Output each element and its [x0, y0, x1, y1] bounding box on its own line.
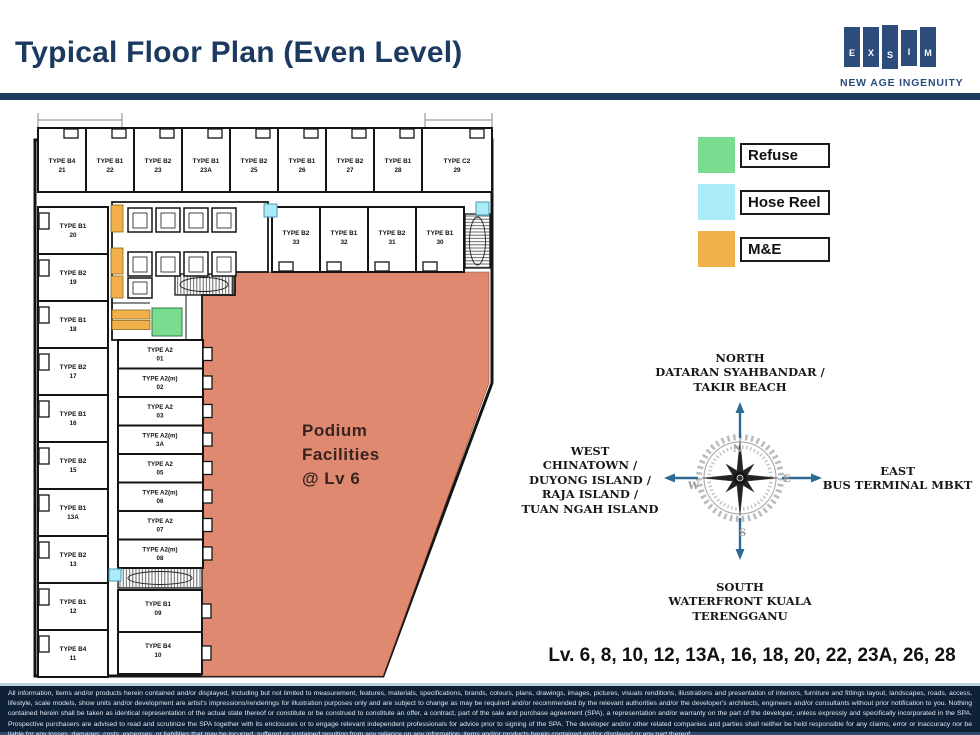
logo-letter: S	[887, 50, 893, 69]
logo-bar: S	[882, 25, 898, 69]
north-label: NORTH DATARAN SYAHBANDAR / TAKIR BEACH	[615, 351, 865, 394]
unit-cell: TYPE B217	[38, 348, 108, 395]
unit-cell: TYPE B126	[278, 128, 326, 192]
me-room	[111, 205, 123, 232]
unit-type-label: TYPE B1	[60, 599, 87, 606]
unit-type-label: TYPE B4	[145, 643, 171, 650]
unit-number-label: 18	[69, 326, 77, 333]
unit-type-label: TYPE B2	[60, 458, 87, 465]
unit-cell: TYPE B213	[38, 536, 108, 583]
unit-cell: TYPE B410	[118, 632, 211, 674]
unit-number-label: 16	[69, 420, 77, 427]
unit-number-label: 01	[157, 356, 164, 363]
unit-cell: TYPE B130	[416, 207, 464, 272]
legend-row-hose-reel: Hose Reel	[698, 184, 830, 220]
hose-reel-swatch	[698, 184, 735, 220]
unit-cell: TYPE A201	[118, 340, 212, 369]
unit-type-label: TYPE A2	[147, 518, 173, 525]
unit-type-label: TYPE A2	[147, 461, 173, 468]
unit-number-label: 28	[394, 167, 402, 174]
hose-reel	[476, 202, 489, 215]
unit-cell: TYPE B215	[38, 442, 108, 489]
unit-number-label: 05	[157, 470, 164, 477]
unit-number-label: 11	[70, 655, 77, 662]
unit-type-label: TYPE A2(m)	[142, 376, 177, 383]
me-room	[112, 310, 150, 319]
me-room	[111, 248, 123, 274]
legend: Refuse Hose Reel M&E	[698, 137, 830, 278]
unit-cell: TYPE A2(m)3A	[118, 426, 212, 455]
staircase	[465, 214, 490, 268]
staircase	[175, 274, 233, 295]
unit-number-label: 07	[157, 527, 164, 534]
east-label: EAST BUS TERMINAL MBKT	[815, 464, 980, 493]
unit-type-label: TYPE B2	[379, 230, 406, 237]
refuse-swatch	[698, 137, 735, 173]
unit-number-label: 23	[154, 167, 162, 174]
unit-type-label: TYPE B1	[385, 158, 412, 165]
unit-cell: TYPE B118	[38, 301, 108, 348]
unit-cell: TYPE B128	[374, 128, 422, 192]
unit-number-label: 21	[58, 167, 66, 174]
unit-type-label: TYPE B2	[283, 230, 310, 237]
unit-cell: TYPE B132	[320, 207, 368, 272]
unit-number-label: 15	[69, 467, 77, 474]
exsim-logo: E X S I M NEW AGE INGENUITY	[840, 24, 940, 89]
unit-type-label: TYPE A2	[147, 404, 173, 411]
unit-number-label: 08	[157, 555, 164, 562]
unit-type-label: TYPE B1	[60, 505, 87, 512]
unit-cell: TYPE A203	[118, 397, 212, 426]
unit-number-label: 26	[298, 167, 306, 174]
unit-number-label: 12	[69, 608, 77, 615]
unit-cell: TYPE B109	[118, 590, 211, 632]
unit-cell: TYPE B120	[38, 207, 108, 254]
unit-type-label: TYPE A2(m)	[142, 490, 177, 497]
unit-type-label: TYPE A2	[147, 347, 173, 354]
svg-text:E: E	[783, 474, 791, 485]
legend-row-refuse: Refuse	[698, 137, 830, 173]
unit-type-label: TYPE A2(m)	[142, 433, 177, 440]
unit-cell: TYPE B225	[230, 128, 278, 192]
logo-bar: E	[844, 27, 860, 67]
svg-text:N: N	[733, 444, 742, 455]
unit-type-label: TYPE B1	[427, 230, 454, 237]
staircase	[118, 568, 202, 588]
refuse-room	[152, 308, 182, 336]
unit-cell: TYPE A205	[118, 454, 212, 483]
unit-number-label: 27	[346, 167, 354, 174]
unit-cell: TYPE B112	[38, 583, 108, 630]
unit-number-label: 13A	[67, 514, 79, 521]
unit-cell: TYPE C229	[422, 128, 492, 192]
unit-number-label: 17	[69, 373, 77, 380]
unit-number-label: 10	[155, 652, 162, 659]
svg-text:Facilities: Facilities	[302, 445, 380, 464]
disclaimer-text: All information, items and/or products h…	[0, 686, 980, 735]
logo-bar: I	[901, 30, 917, 66]
unit-number-label: 13	[69, 561, 77, 568]
unit-cell: TYPE B113A	[38, 489, 108, 536]
svg-text:W: W	[687, 481, 700, 492]
me-room	[111, 276, 123, 298]
unit-cell: TYPE A2(m)08	[118, 540, 212, 569]
unit-cell: TYPE B411	[38, 630, 108, 677]
legend-label: M&E	[740, 237, 830, 262]
dimension-ticks	[38, 113, 492, 127]
unit-number-label: 19	[69, 279, 77, 286]
unit-type-label: TYPE B2	[60, 270, 87, 277]
logo-letter: E	[849, 48, 855, 67]
south-label: SOUTH WATERFRONT KUALA TERENGGANU	[645, 580, 835, 623]
logo-letter: I	[908, 47, 911, 66]
unit-cell: TYPE B233	[272, 207, 320, 272]
logo-bars: E X S I M	[840, 24, 940, 72]
unit-number-label: 32	[340, 239, 348, 246]
logo-tagline: NEW AGE INGENUITY	[840, 77, 940, 89]
lift-shaft	[128, 278, 152, 298]
unit-cell: TYPE A2(m)06	[118, 483, 212, 512]
unit-type-label: TYPE C2	[444, 158, 471, 165]
legend-row-me: M&E	[698, 231, 830, 267]
unit-number-label: 03	[157, 413, 164, 420]
me-room	[112, 321, 150, 330]
svg-text:S: S	[739, 528, 746, 539]
unit-cell: TYPE A207	[118, 511, 212, 540]
unit-cell: TYPE A2(m)02	[118, 369, 212, 398]
page-title: Typical Floor Plan (Even Level)	[15, 36, 462, 70]
unit-type-label: TYPE A2(m)	[142, 547, 177, 554]
header-divider	[0, 93, 980, 100]
unit-type-label: TYPE B2	[145, 158, 172, 165]
unit-number-label: 29	[453, 167, 461, 174]
unit-cell: TYPE B116	[38, 395, 108, 442]
unit-type-label: TYPE B2	[337, 158, 364, 165]
unit-number-label: 09	[155, 610, 162, 617]
unit-type-label: TYPE B1	[60, 317, 87, 324]
unit-number-label: 25	[250, 167, 258, 174]
hose-reel	[109, 569, 121, 581]
unit-type-label: TYPE B1	[331, 230, 358, 237]
logo-letter: X	[868, 48, 874, 67]
west-label: WEST CHINATOWN / DUYONG ISLAND / RAJA IS…	[510, 444, 670, 516]
unit-cell: TYPE B223	[134, 128, 182, 192]
unit-number-label: 30	[436, 239, 444, 246]
unit-number-label: 23A	[200, 167, 212, 174]
compass-hub	[737, 475, 743, 481]
disclaimer-bar: All information, items and/or products h…	[0, 686, 980, 735]
legend-label: Hose Reel	[740, 190, 830, 215]
hose-reel	[264, 204, 277, 217]
unit-type-label: TYPE B1	[60, 223, 87, 230]
unit-number-label: 02	[157, 384, 164, 391]
unit-cell: TYPE B227	[326, 128, 374, 192]
floor-plan-slide: Typical Floor Plan (Even Level) E X S I …	[0, 0, 980, 735]
svg-text:@ Lv 6: @ Lv 6	[302, 469, 360, 488]
unit-type-label: TYPE B1	[289, 158, 316, 165]
floor-plan-drawing: TYPE B421TYPE B122TYPE B223TYPE B123ATYP…	[20, 106, 500, 684]
unit-type-label: TYPE B4	[60, 646, 87, 653]
unit-type-label: TYPE B1	[193, 158, 220, 165]
unit-type-label: TYPE B1	[97, 158, 124, 165]
unit-number-label: 31	[388, 239, 396, 246]
unit-cell: TYPE B123A	[182, 128, 230, 192]
unit-number-label: 3A	[156, 441, 164, 448]
unit-number-label: 33	[292, 239, 300, 246]
logo-bar: M	[920, 27, 936, 67]
unit-type-label: TYPE B2	[241, 158, 268, 165]
unit-type-label: TYPE B2	[60, 552, 87, 559]
unit-type-label: TYPE B2	[60, 364, 87, 371]
svg-text:Podium: Podium	[302, 421, 367, 440]
unit-cell: TYPE B421	[38, 128, 86, 192]
unit-type-label: TYPE B1	[60, 411, 87, 418]
me-swatch	[698, 231, 735, 267]
unit-number-label: 22	[106, 167, 114, 174]
unit-number-label: 20	[69, 232, 77, 239]
unit-cell: TYPE B122	[86, 128, 134, 192]
legend-label: Refuse	[740, 143, 830, 168]
levels-list: Lv. 6, 8, 10, 12, 13A, 16, 18, 20, 22, 2…	[532, 645, 972, 667]
unit-type-label: TYPE B4	[49, 158, 76, 165]
unit-number-label: 06	[157, 498, 164, 505]
logo-bar: X	[863, 27, 879, 67]
unit-type-label: TYPE B1	[145, 601, 171, 608]
logo-letter: M	[924, 48, 932, 67]
unit-cell: TYPE B219	[38, 254, 108, 301]
unit-cell: TYPE B231	[368, 207, 416, 272]
